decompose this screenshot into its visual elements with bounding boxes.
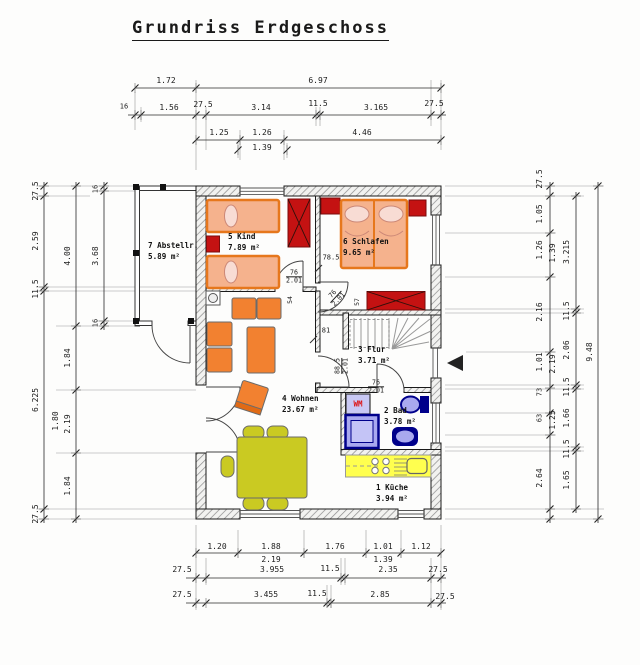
room-label: 3 Flur3.71 m² [358,344,390,366]
room-label: 1 Küche3.94 m² [376,482,408,504]
dim-label: 2.06 [563,340,571,359]
dim-label: 16 [93,319,100,327]
dim-label: 11.5 [308,100,327,108]
dim-label: 11.5 [320,565,339,573]
dim-label: 1.12 [411,543,430,551]
dim-label: 2.19 [64,414,72,433]
room-label: 4 Wohnen23.67 m² [282,393,319,415]
dim-label: 16 [93,185,100,193]
dim-label: 16 [120,104,128,111]
dim-label: 3.14 [251,104,270,112]
dim-label: 2.16 [536,302,544,321]
dim-label: 1.56 [159,104,178,112]
label-overlay: 1.726.97161.5627.53.1411.53.16527.51.251… [0,0,640,665]
dim-label: 3.455 [254,591,278,599]
dim-label: 1.39 [373,556,392,564]
dim-label: 73 [537,388,544,396]
dim-label: 2.85 [370,591,389,599]
dim-label: 6.225 [32,388,40,412]
room-label: 6 Schlafen9.65 m² [343,236,389,258]
dim-label: 63 [537,414,544,422]
dim-label: 1.25 [549,410,557,429]
dim-label: 1.39 [549,243,557,262]
dim-label: 1.26 [536,240,544,259]
dim-label: 3.215 [563,240,571,264]
dim-label: 27.5 [536,169,544,188]
floorplan-page: Grundriss Erdgeschoss [0,0,640,665]
dim-label: 1.25 [209,129,228,137]
dim-label: 2.59 [32,231,40,250]
dim-label: 3.955 [260,566,284,574]
dim-label: 11.5 [32,279,40,298]
dim-label: 2.19 [261,556,280,564]
door-size-label: 762.01 [286,269,302,284]
room-label: 7 Abstellr.5.89 m² [148,240,198,262]
dim-label: 1.26 [252,129,271,137]
dim-label: WM [353,400,362,408]
dim-label: 11.5 [563,301,571,320]
dim-label: 4.46 [352,129,371,137]
door-size-label: 762.01 [368,379,384,394]
dim-label: 1.01 [373,543,392,551]
dim-label: 81 [322,328,330,335]
dim-label: 3.165 [364,104,388,112]
dim-label: 57 [354,298,361,306]
dim-label: 27.5 [32,504,40,523]
dim-label: 78.5 [323,255,340,262]
dim-label: 27.5 [172,591,191,599]
dim-label: 6.97 [308,77,327,85]
dim-label: 1.84 [64,476,72,495]
dim-label: 1.80 [52,411,60,430]
dim-label: 27.5 [32,181,40,200]
dim-label: 1.72 [156,77,175,85]
dim-label: 9.48 [586,342,594,361]
room-label: 5 Kind7.89 m² [228,231,260,253]
dim-label: 27.5 [435,593,454,601]
dim-label: 1.76 [325,543,344,551]
dim-label: 2.35 [378,566,397,574]
dim-label: 27.5 [172,566,191,574]
dim-label: 1.39 [252,144,271,152]
dim-label: 11.5 [307,590,326,598]
dim-label: 27.5 [424,100,443,108]
dim-label: 2.19 [549,354,557,373]
door-size-label: 762.01 [325,286,347,308]
dim-label: 3.68 [92,246,100,265]
door-size-label: 88.52.01 [334,358,349,374]
dim-label: 54 [287,296,294,304]
dim-label: 27.5 [428,566,447,574]
dim-label: 1.20 [207,543,226,551]
dim-label: 1.01 [536,352,544,371]
dim-label: 1.05 [536,204,544,223]
dim-label: 2.64 [536,468,544,487]
room-label: 2 Bad3.78 m² [384,405,416,427]
dim-label: 1.65 [563,470,571,489]
dim-label: 4.00 [64,246,72,265]
dim-label: 11.5 [563,377,571,396]
dim-label: 1.88 [261,543,280,551]
dim-label: 11.5 [563,439,571,458]
dim-label: 27.5 [193,101,212,109]
dim-label: 1.66 [563,408,571,427]
dim-label: 1.84 [64,348,72,367]
